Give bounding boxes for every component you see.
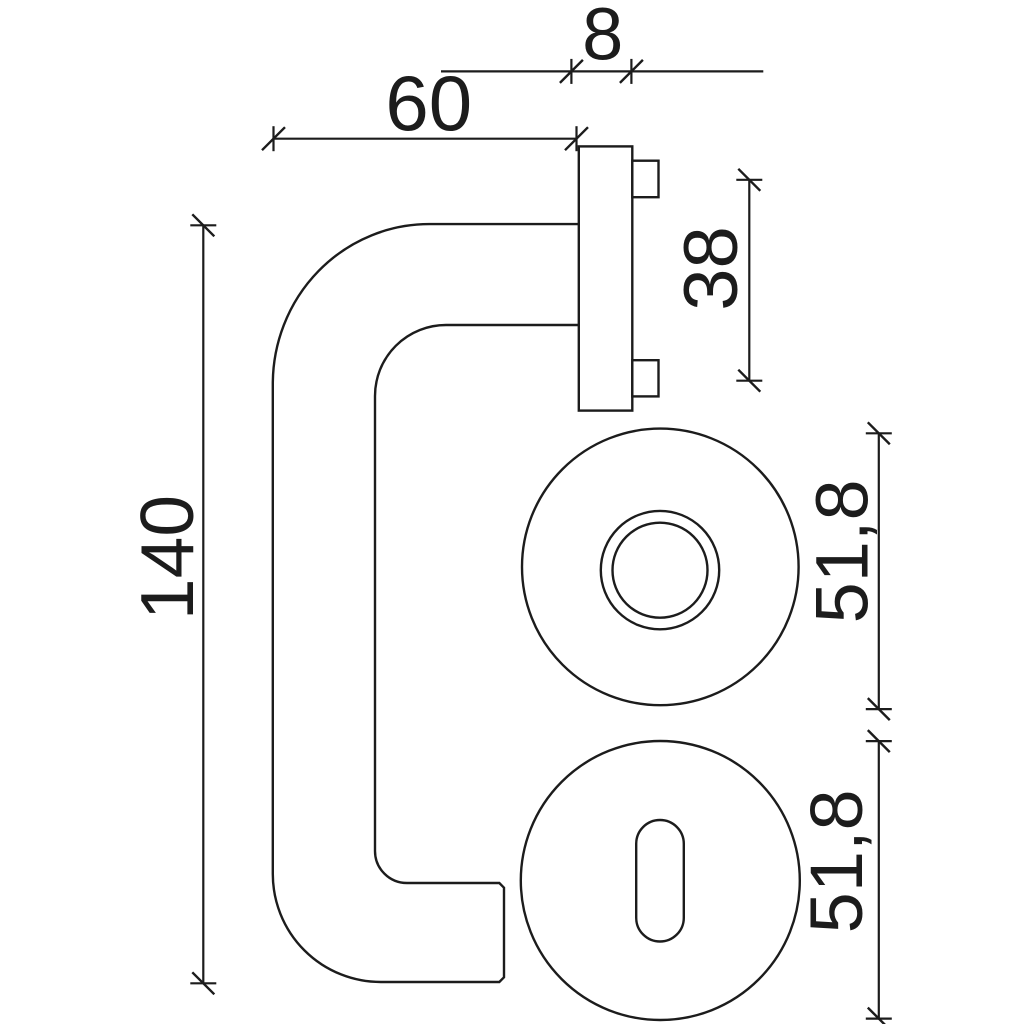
svg-text:51,8: 51,8 (801, 479, 884, 623)
svg-text:51,8: 51,8 (795, 789, 878, 933)
svg-text:38: 38 (669, 226, 754, 311)
svg-text:140: 140 (125, 495, 209, 620)
svg-text:60: 60 (385, 59, 472, 147)
svg-text:8: 8 (582, 0, 623, 75)
